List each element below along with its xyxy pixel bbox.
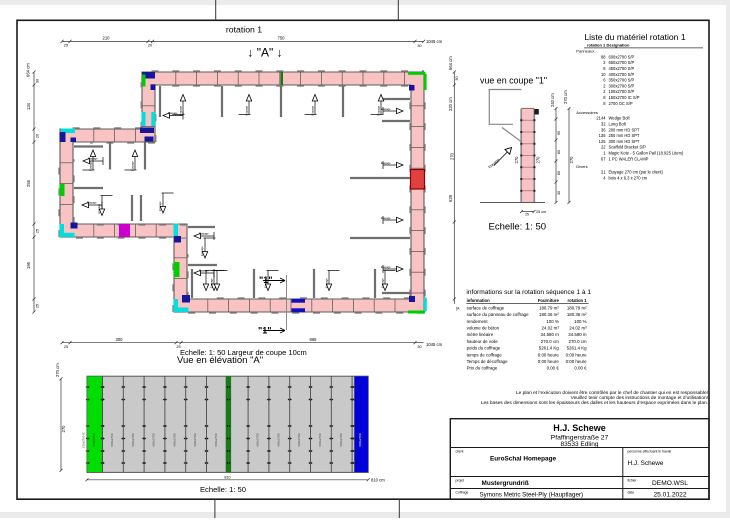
svg-text:240 cm: 240 cm [550,93,555,107]
svg-text:100x2700 S/P: 100x2700 S/P [609,89,635,94]
svg-text:[A: [A [456,307,460,311]
svg-text:150x2700 IC S/P: 150x2700 IC S/P [609,95,640,100]
svg-text:1045 cm: 1045 cm [426,39,443,44]
svg-text:mètre linéaire: mètre linéaire [467,332,494,337]
svg-text:600x2700: 600x2700 [110,433,114,447]
svg-text:0:00 heure: 0:00 heure [566,352,588,357]
svg-text:Mustergrundriß: Mustergrundriß [482,480,529,487]
svg-text:Echelle: 1: 50: Echelle: 1: 50 [200,485,246,494]
svg-text:30: 30 [557,191,561,195]
svg-text:200 mm HD SPT: 200 mm HD SPT [609,127,640,132]
svg-text:350x2700 S/P: 350x2700 S/P [609,78,635,83]
svg-text:"1": "1" [259,275,273,285]
svg-text:Etayage: Etayage [381,216,391,220]
svg-text:rendement: rendement [467,319,489,324]
svg-text:100 %: 100 % [574,319,587,324]
svg-text:220 cm: 220 cm [448,97,453,111]
svg-text:Long Bolt: Long Bolt [609,122,627,127]
svg-text:600x2700: 600x2700 [318,433,322,447]
svg-text:270.0 cm: 270.0 cm [541,339,559,344]
svg-text:H.J. Schewe: H.J. Schewe [628,460,664,467]
svg-text:270.0 cm: 270.0 cm [569,339,587,344]
svg-text:Magic Kote - 5 Gallon Pail (18: Magic Kote - 5 Gallon Pail (18.925 Liter… [609,151,684,156]
svg-text:195: 195 [26,261,31,269]
svg-text:0:00 heure: 0:00 heure [538,352,560,357]
svg-text:34.580 m: 34.580 m [540,332,559,337]
svg-text:Etayage: Etayage [245,105,249,115]
svg-text:Symons Metric Steel-Ply (Haupt: Symons Metric Steel-Ply (Hauptlager) [480,491,584,498]
svg-text:Scaffold Bracket S/P: Scaffold Bracket S/P [609,145,647,150]
svg-text:180.79 m²: 180.79 m² [539,305,559,310]
svg-text:600x2700: 600x2700 [256,433,260,447]
svg-text:150x2700 IC: 150x2700 IC [82,432,86,448]
svg-text:255: 255 [26,179,31,187]
svg-text:rotation 1: rotation 1 [226,25,262,35]
svg-text:629: 629 [448,194,453,202]
svg-text:36: 36 [601,127,606,132]
svg-text:surface du panneau de coffrage: surface du panneau de coffrage [467,312,529,317]
svg-text:67: 67 [601,156,606,161]
svg-text:88: 88 [601,54,606,59]
svg-text:0.00 €: 0.00 € [574,366,587,371]
svg-text:270: 270 [569,156,574,164]
svg-text:Etayage: Etayage [210,278,214,288]
svg-text:300: 300 [116,337,124,342]
svg-text:2700 OC S/P: 2700 OC S/P [609,101,633,106]
svg-text:information: information [467,298,490,303]
svg-text:600x2700: 600x2700 [131,433,135,447]
svg-text:1045 cm: 1045 cm [426,342,443,347]
svg-text:600x2700 S/P: 600x2700 S/P [609,54,635,59]
svg-text:↓ "A" ↓: ↓ "A" ↓ [247,46,282,60]
svg-text:600x2700: 600x2700 [193,433,197,447]
svg-text:810: 810 [224,475,230,479]
svg-text:10: 10 [601,72,606,77]
svg-text:date: date [628,491,635,495]
svg-text:60: 60 [557,150,561,154]
svg-text:210: 210 [103,36,111,41]
svg-text:Divers: Divers [576,164,587,169]
svg-text:Etayage: Etayage [381,161,391,165]
svg-text:664 cm: 664 cm [26,63,31,77]
svg-text:Etayage: Etayage [381,107,391,111]
svg-text:25: 25 [525,213,529,217]
svg-text:Etayage: Etayage [158,201,162,211]
svg-text:rotation 1: rotation 1 [587,42,606,47]
svg-text:Etayage: Etayage [168,111,178,115]
svg-text:135: 135 [599,133,607,138]
svg-text:0:00 heure: 0:00 heure [566,359,588,364]
svg-text:Wedge Bolt: Wedge Bolt [609,116,631,121]
svg-text:Les bases des dimensions sont: Les bases des dimensions sont les épaiss… [481,400,708,406]
svg-text:750: 750 [278,36,286,41]
svg-text:poids du coffrage: poids du coffrage [467,346,501,351]
svg-text:270: 270 [514,156,519,164]
svg-text:Etayage: Etayage [200,246,204,256]
svg-text:25: 25 [36,304,40,308]
svg-text:Liste du matériel rotation 1: Liste du matériel rotation 1 [584,32,685,42]
svg-text:1 PC WALER CLAMP: 1 PC WALER CLAMP [609,156,649,161]
svg-text:temps de coffrage: temps de coffrage [467,352,503,357]
svg-text:24.02 m³: 24.02 m³ [569,326,587,331]
svg-text:Etayage: Etayage [89,161,93,171]
svg-text:250 mm HD SPT: 250 mm HD SPT [609,133,640,138]
svg-text:Coffrage: Coffrage [456,491,469,495]
svg-text:600x2700: 600x2700 [214,433,218,447]
svg-text:30: 30 [417,345,421,349]
svg-text:25 cm: 25 cm [536,210,546,214]
svg-text:Temps de décoffrage: Temps de décoffrage [467,359,508,364]
svg-text:24.02 m³: 24.02 m³ [541,326,559,331]
svg-text:Etayage 270 cm (par le client): Etayage 270 cm (par le client) [609,170,664,175]
svg-text:450x2700 S/P: 450x2700 S/P [609,66,635,71]
svg-text:EuroSchal Homepage: EuroSchal Homepage [490,455,556,462]
svg-text:Vue en élévation "A": Vue en élévation "A" [177,355,263,366]
svg-text:H.J. Schewe: H.J. Schewe [553,423,606,433]
svg-text:134: 134 [26,102,31,110]
svg-text:surface de coffrage: surface de coffrage [467,305,505,310]
svg-text:hauteur de voile: hauteur de voile [467,339,499,344]
svg-text:vue en coupe "1": vue en coupe "1" [480,76,547,86]
svg-text:0.00 €: 0.00 € [547,366,560,371]
svg-text:0:00 heure: 0:00 heure [538,359,560,364]
svg-text:21: 21 [601,170,606,175]
svg-text:25: 25 [64,345,68,349]
svg-text:25: 25 [64,44,68,48]
svg-text:125: 125 [599,139,607,144]
svg-text:300x2700 S/P: 300x2700 S/P [609,83,635,88]
svg-text:30: 30 [36,79,40,83]
svg-text:25.01.2022: 25.01.2022 [653,492,686,499]
svg-text:270: 270 [450,152,455,160]
svg-text:Etayage: Etayage [179,105,183,115]
svg-text:personne effectuant le travail: personne effectuant le travail [628,450,672,454]
svg-text:20: 20 [36,134,40,138]
svg-text:informations sur la rotation: informations sur la rotation séquence 1 … [466,289,591,296]
svg-text:DEMO.WSL: DEMO.WSL [652,480,688,487]
svg-text:90: 90 [557,131,561,135]
svg-text:projet: projet [456,479,465,483]
svg-text:600x2700: 600x2700 [358,433,362,447]
svg-text:270: 270 [61,425,66,433]
svg-text:Etayage: Etayage [87,201,97,205]
svg-text:rotation 1: rotation 1 [568,298,588,303]
svg-text:650x2700 S/P: 650x2700 S/P [609,60,635,65]
svg-text:60: 60 [557,171,561,175]
svg-text:Panneaux: Panneaux [576,49,594,54]
svg-text:Etayage: Etayage [199,232,209,236]
svg-text:810 cm: 810 cm [371,477,385,482]
svg-text:180.36 m²: 180.36 m² [567,312,587,317]
svg-text:Accessoires: Accessoires [576,110,598,115]
svg-text:Fourniture: Fourniture [538,298,560,303]
svg-text:650x2700: 650x2700 [92,433,96,447]
svg-text:34.580 m: 34.580 m [568,332,587,337]
svg-text:Veuillez tenir compte des inst: Veuillez tenir compte des instructions d… [571,395,708,401]
svg-text:Prix du coffrage: Prix du coffrage [467,366,498,371]
svg-text:Etayage: Etayage [97,203,101,213]
svg-text:865: 865 [310,337,318,342]
svg-text:30: 30 [417,44,421,48]
svg-text:100 %: 100 % [546,319,559,324]
svg-text:664 cm: 664 cm [448,56,453,70]
svg-text:2144: 2144 [596,116,606,121]
svg-text:Etayage: Etayage [381,265,391,269]
svg-text:5261.4 Kg: 5261.4 Kg [539,346,560,351]
svg-text:volume de béton: volume de béton [467,326,500,331]
svg-text:Etayage: Etayage [381,278,385,288]
svg-text:180.36 m²: 180.36 m² [539,312,559,317]
svg-text:300 mm HD SPT: 300 mm HD SPT [609,139,640,144]
svg-text:600x2700: 600x2700 [276,433,280,447]
svg-text:25: 25 [36,229,40,233]
svg-text:400x2700 S/P: 400x2700 S/P [609,72,635,77]
svg-text:600x2700: 600x2700 [172,433,176,447]
svg-text:bois 4 x 6.3 x 270 cm: bois 4 x 6.3 x 270 cm [609,176,648,181]
svg-text:5261.4 Kg: 5261.4 Kg [567,346,588,351]
svg-text:270 cm: 270 cm [563,90,568,104]
svg-text:Etayage: Etayage [131,161,135,171]
svg-text:30: 30 [455,76,459,80]
svg-text:180.79 m²: 180.79 m² [567,305,587,310]
svg-text:270 cm: 270 cm [55,363,60,377]
svg-text:22: 22 [601,145,606,150]
svg-text:Etayage: Etayage [311,105,315,115]
svg-text:32: 32 [601,122,606,127]
svg-text:Désignation: Désignation [607,42,630,47]
svg-text:20: 20 [148,44,152,48]
svg-text:Echelle: 1: 50: Echelle: 1: 50 [489,222,547,233]
svg-text:client: client [456,450,464,454]
svg-text:fichier: fichier [628,479,638,483]
svg-text:270: 270 [536,156,541,164]
svg-text:600x2700: 600x2700 [152,433,156,447]
svg-text:Etayage: Etayage [325,278,329,288]
svg-text:600x2700: 600x2700 [297,433,301,447]
svg-text:83533 Edling: 83533 Edling [561,441,599,448]
svg-text:600x2700: 600x2700 [339,433,343,447]
